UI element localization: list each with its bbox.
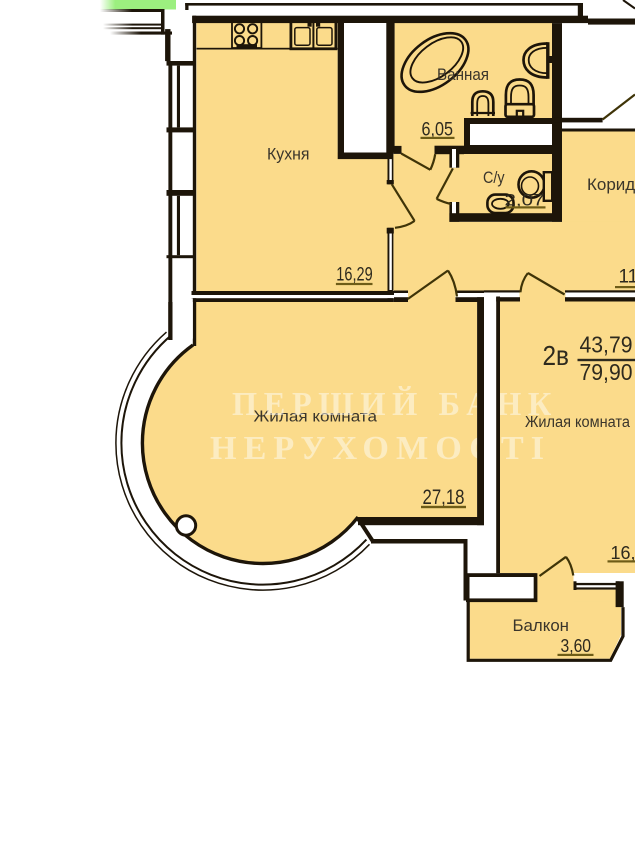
- svg-text:Коридор: Коридор: [587, 175, 635, 194]
- svg-text:ПЕРШИЙ БАНК: ПЕРШИЙ БАНК: [232, 386, 558, 423]
- svg-text:27,18: 27,18: [423, 485, 465, 509]
- svg-text:11,2: 11,2: [619, 267, 635, 288]
- svg-text:2в: 2в: [543, 340, 570, 371]
- svg-text:16,65: 16,65: [611, 543, 635, 563]
- svg-text:Ванная: Ванная: [437, 65, 489, 84]
- svg-text:3,60: 3,60: [561, 636, 592, 656]
- svg-text:Балкон: Балкон: [513, 616, 570, 635]
- svg-text:С/у: С/у: [483, 168, 505, 187]
- svg-text:16,29: 16,29: [336, 264, 372, 286]
- svg-text:Кухня: Кухня: [267, 145, 310, 164]
- svg-text:79,90: 79,90: [580, 359, 633, 385]
- svg-text:43,79: 43,79: [580, 332, 633, 358]
